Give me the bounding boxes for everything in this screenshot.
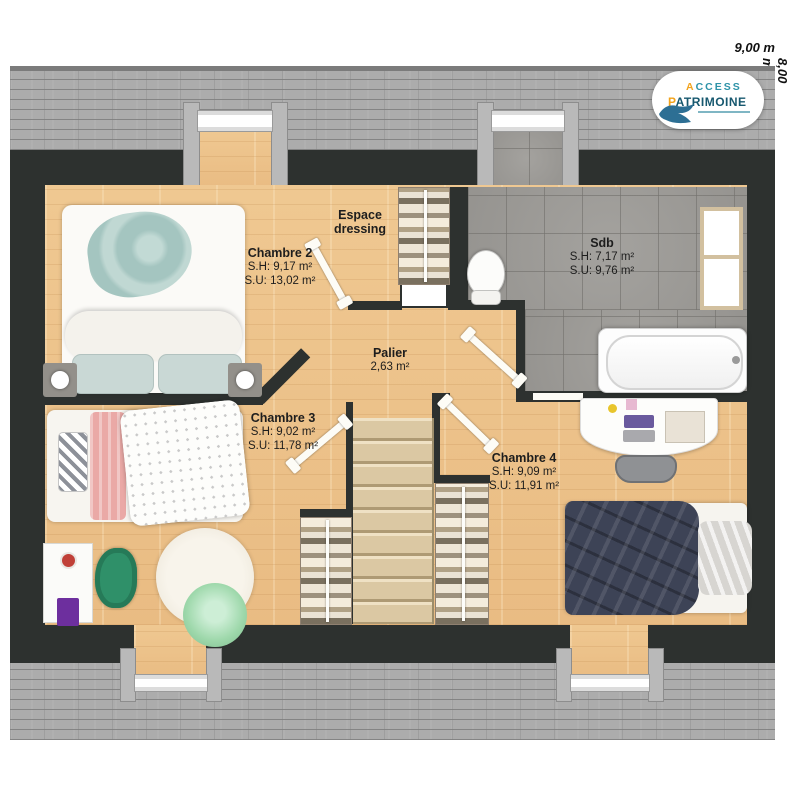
room-name: Sdb: [502, 236, 702, 250]
dressing-clothes-rack: [398, 187, 450, 285]
sdb-threshold: [533, 393, 583, 400]
room-su: S.U: 9,76 m²: [502, 264, 702, 278]
bed-chambre4-navy-duvet: [565, 501, 699, 615]
desk-purple-object: [57, 598, 79, 626]
window-reveal-floor-top-left: [197, 130, 272, 187]
logo-line1: ACCESS: [686, 81, 742, 93]
window-reveal-floor-bottom-right: [570, 625, 648, 677]
pouf-chambre3: [183, 583, 247, 647]
window-jamb: [206, 648, 222, 702]
lamp-icon: [51, 371, 69, 389]
desk-pink-item: [626, 399, 637, 410]
label-chambre4: Chambre 4 S.H: 9,09 m² S.U: 11,91 m²: [424, 451, 624, 493]
clothes-rack-left: [300, 517, 352, 625]
room-name: Espace: [310, 208, 410, 222]
label-palier: Palier 2,63 m²: [340, 346, 440, 374]
window-bottom-right: [570, 674, 650, 692]
clothes-rack-right: [435, 483, 489, 625]
desk-papers: [665, 411, 705, 443]
pillow-patterned: [58, 432, 88, 492]
bathtub-faucet-icon: [732, 356, 740, 364]
label-dressing: Espace dressing: [310, 208, 410, 236]
label-chambre3: Chambre 3 S.H: 9,02 m² S.U: 11,78 m²: [183, 411, 383, 453]
bed-chambre4-pillows: [698, 521, 752, 595]
access-patrimoine-logo: ACCESS PATRIMOINE: [652, 71, 764, 129]
floor-plan: Chambre 2 S.H: 9,17 m² S.U: 13,02 m² Esp…: [10, 66, 775, 740]
logo-tagline-rule: [698, 111, 750, 113]
toilet-base: [471, 290, 501, 305]
wall-rack-left-top: [300, 509, 350, 517]
desk-yellow-item: [608, 404, 617, 413]
hand-icon: [657, 101, 697, 125]
label-sdb: Sdb S.H: 7,17 m² S.U: 9,76 m²: [502, 236, 702, 278]
room-sh: S.H: 9,02 m²: [183, 425, 383, 439]
pillow: [72, 354, 154, 394]
bathtub-basin: [606, 335, 743, 390]
dimension-width-label: 9,00 m: [695, 40, 775, 55]
room-sh: S.H: 7,17 m²: [502, 250, 702, 264]
window-jamb: [271, 102, 288, 190]
room-name: dressing: [310, 222, 410, 236]
room-name: Chambre 3: [183, 411, 383, 425]
room-name: Chambre 2: [180, 246, 380, 260]
room-area: 2,63 m²: [340, 360, 440, 374]
room-sh: S.H: 9,17 m²: [180, 260, 380, 274]
floor-plan-canvas: 9,00 m 8,00 m: [0, 0, 800, 800]
bathroom-shelf-divider: [704, 255, 739, 259]
chair-chambre3: [95, 548, 137, 608]
wall-toilet-left: [448, 187, 468, 300]
room-su: S.U: 11,91 m²: [424, 479, 624, 493]
wall-under-dressing: [348, 301, 402, 310]
lamp-icon: [236, 371, 254, 389]
room-sh: S.H: 9,09 m²: [424, 465, 624, 479]
room-su: S.U: 13,02 m²: [180, 274, 380, 288]
chair-chambre4: [615, 455, 677, 483]
room-name: Palier: [340, 346, 440, 360]
desk-cup: [60, 552, 77, 569]
laptop-keyboard: [623, 430, 655, 442]
dressing-cabinet: [400, 283, 448, 308]
laptop-screen: [624, 415, 654, 428]
window-top-right: [491, 110, 565, 132]
room-name: Chambre 4: [424, 451, 624, 465]
label-chambre2: Chambre 2 S.H: 9,17 m² S.U: 13,02 m²: [180, 246, 380, 288]
window-jamb: [648, 648, 664, 702]
window-bottom-left: [134, 674, 208, 692]
window-reveal-floor-top-right: [491, 130, 563, 187]
room-su: S.U: 11,78 m²: [183, 439, 383, 453]
window-top-left: [197, 110, 273, 132]
